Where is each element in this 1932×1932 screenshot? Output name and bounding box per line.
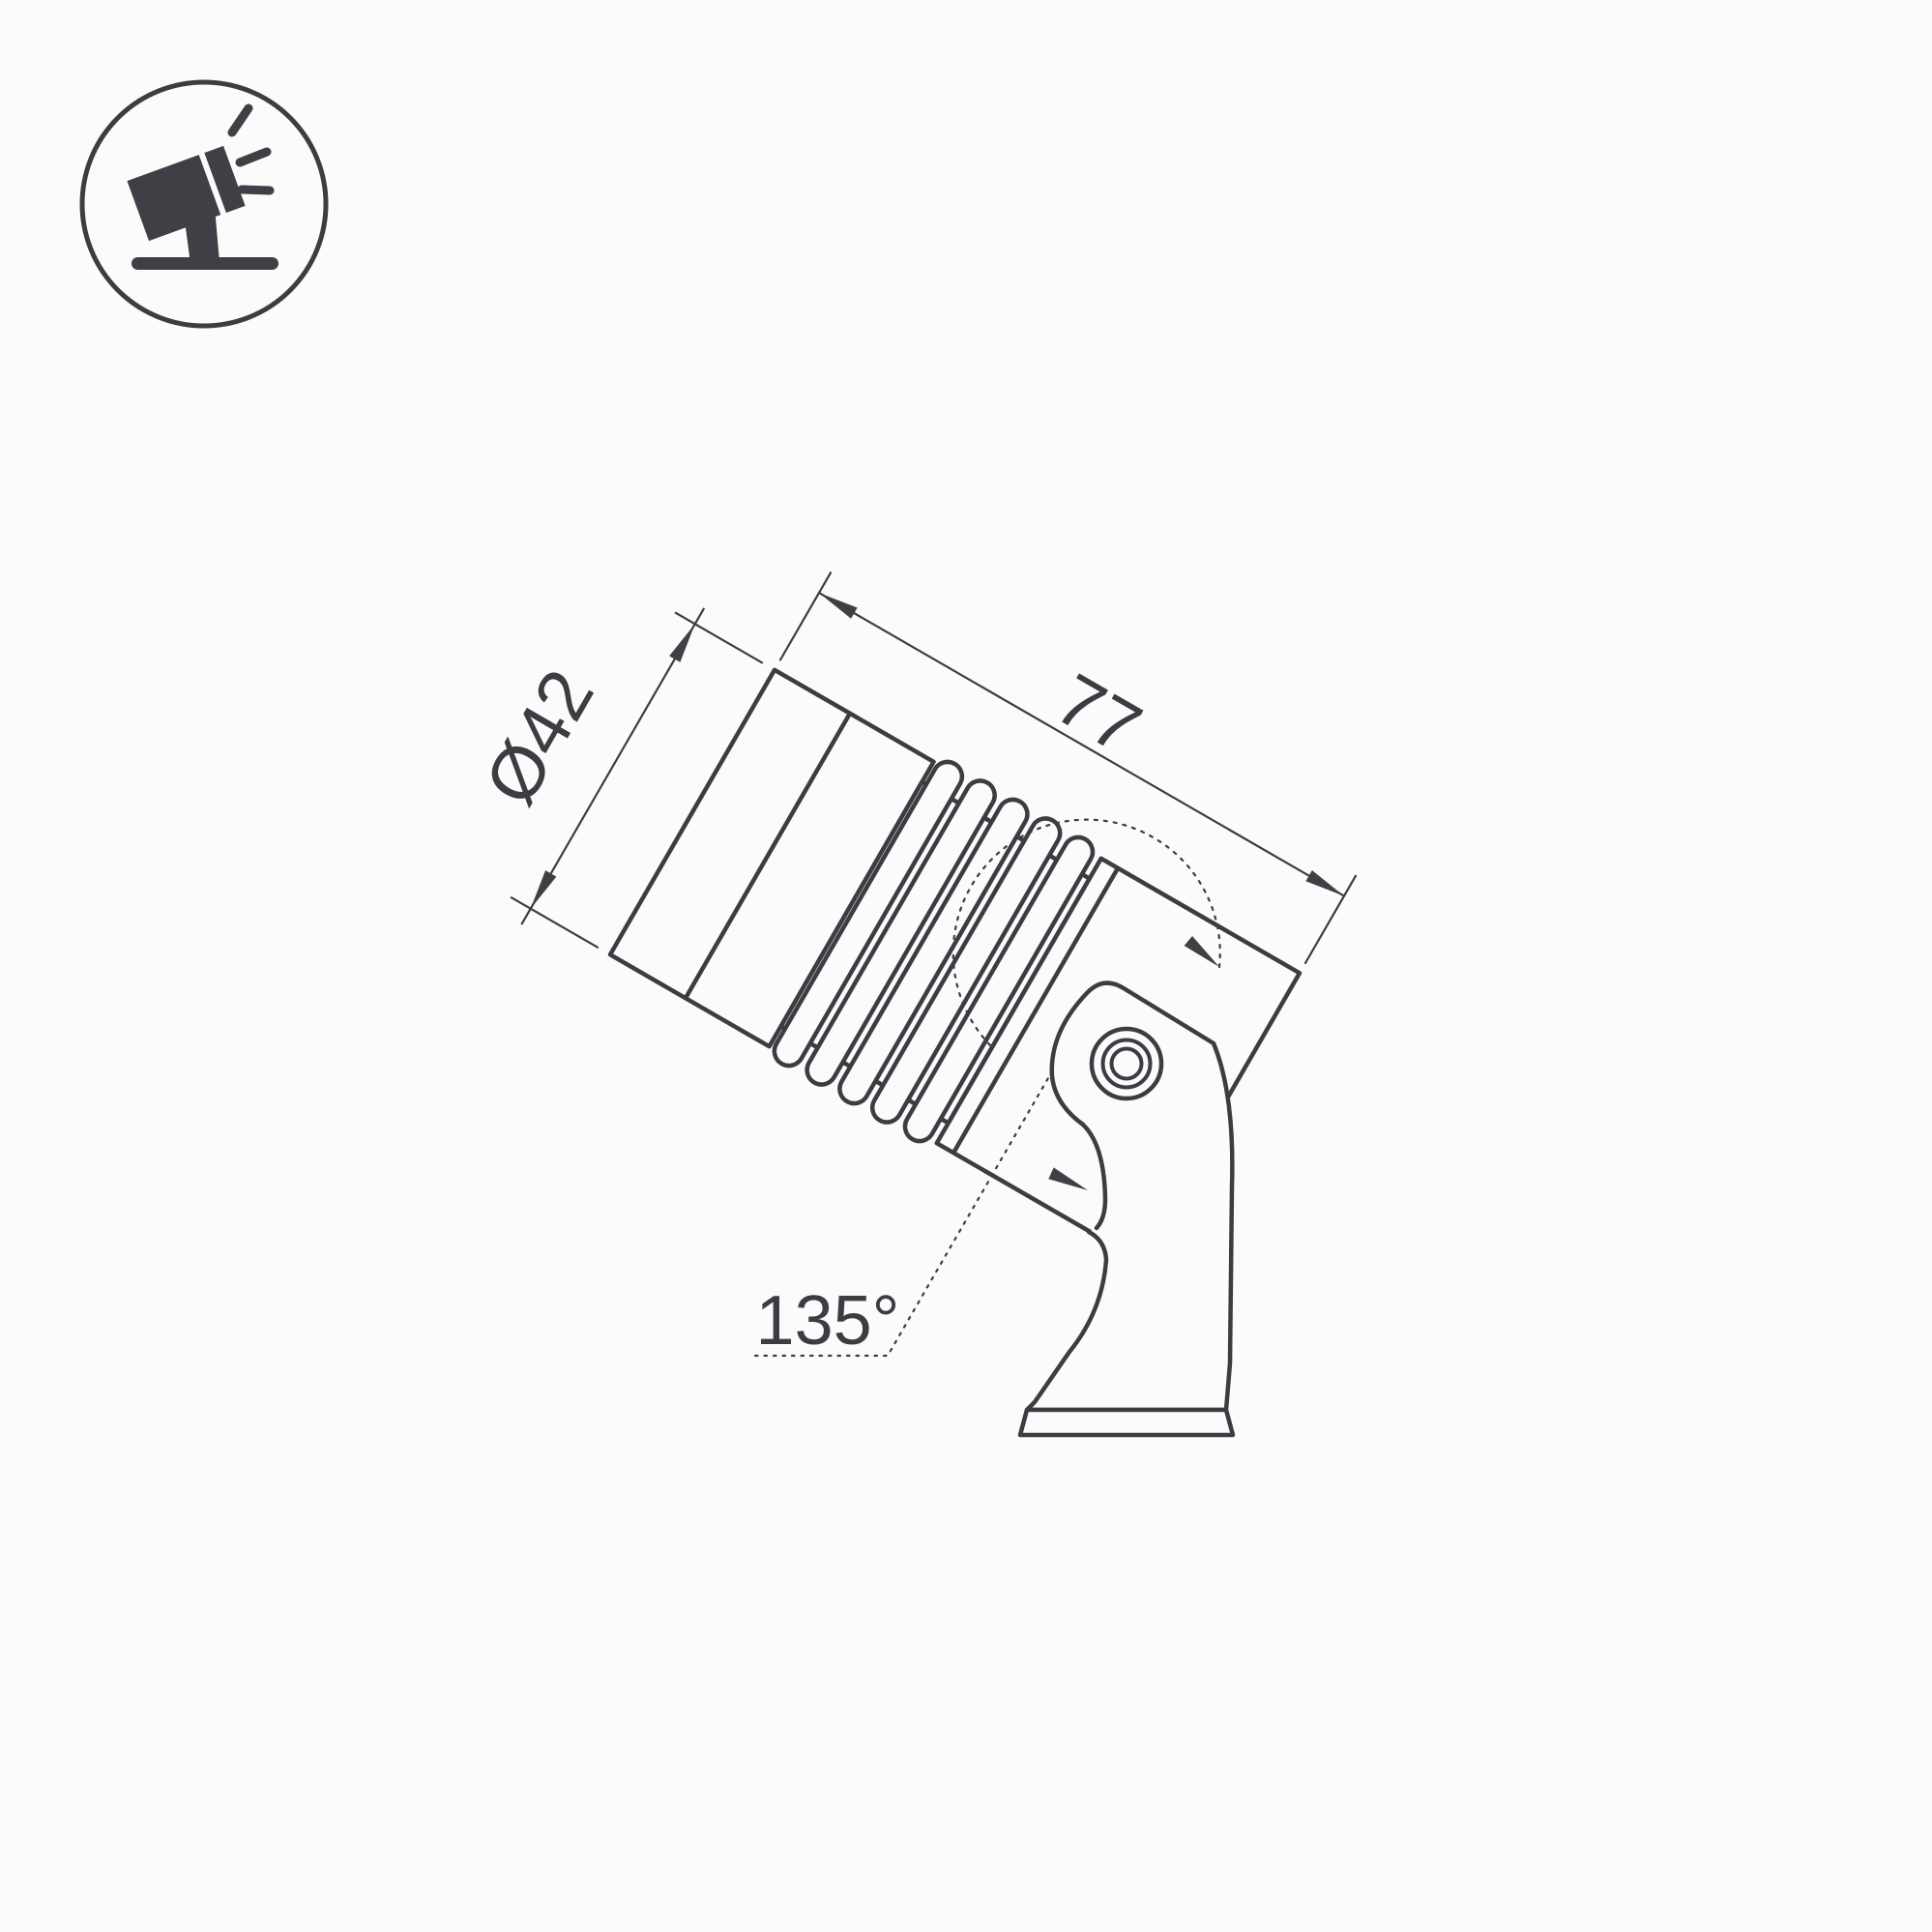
diagram-canvas: Ø42 77 135° xyxy=(0,0,1932,1932)
arrowhead-icon xyxy=(1305,870,1347,901)
icon-light-rays xyxy=(232,108,270,190)
tilted-spotlight-icon xyxy=(82,82,326,326)
length-label: 77 xyxy=(1042,659,1155,771)
spotlight-body-group: Ø42 77 xyxy=(419,423,1382,1273)
arrowhead-icon xyxy=(525,870,556,912)
length-extension-line-front xyxy=(780,572,831,659)
bracket-base-plate xyxy=(1020,1410,1233,1435)
diameter-label: Ø42 xyxy=(469,657,609,818)
icon-ground-line xyxy=(132,257,278,270)
pivot-joint xyxy=(1092,1029,1161,1098)
icon-lamp-stem xyxy=(184,207,220,264)
arrowhead-icon xyxy=(669,621,700,662)
arrowhead-icon xyxy=(816,587,858,618)
swivel-angle-label: 135° xyxy=(756,1282,900,1360)
diameter-extension-line-bottom xyxy=(512,897,598,948)
